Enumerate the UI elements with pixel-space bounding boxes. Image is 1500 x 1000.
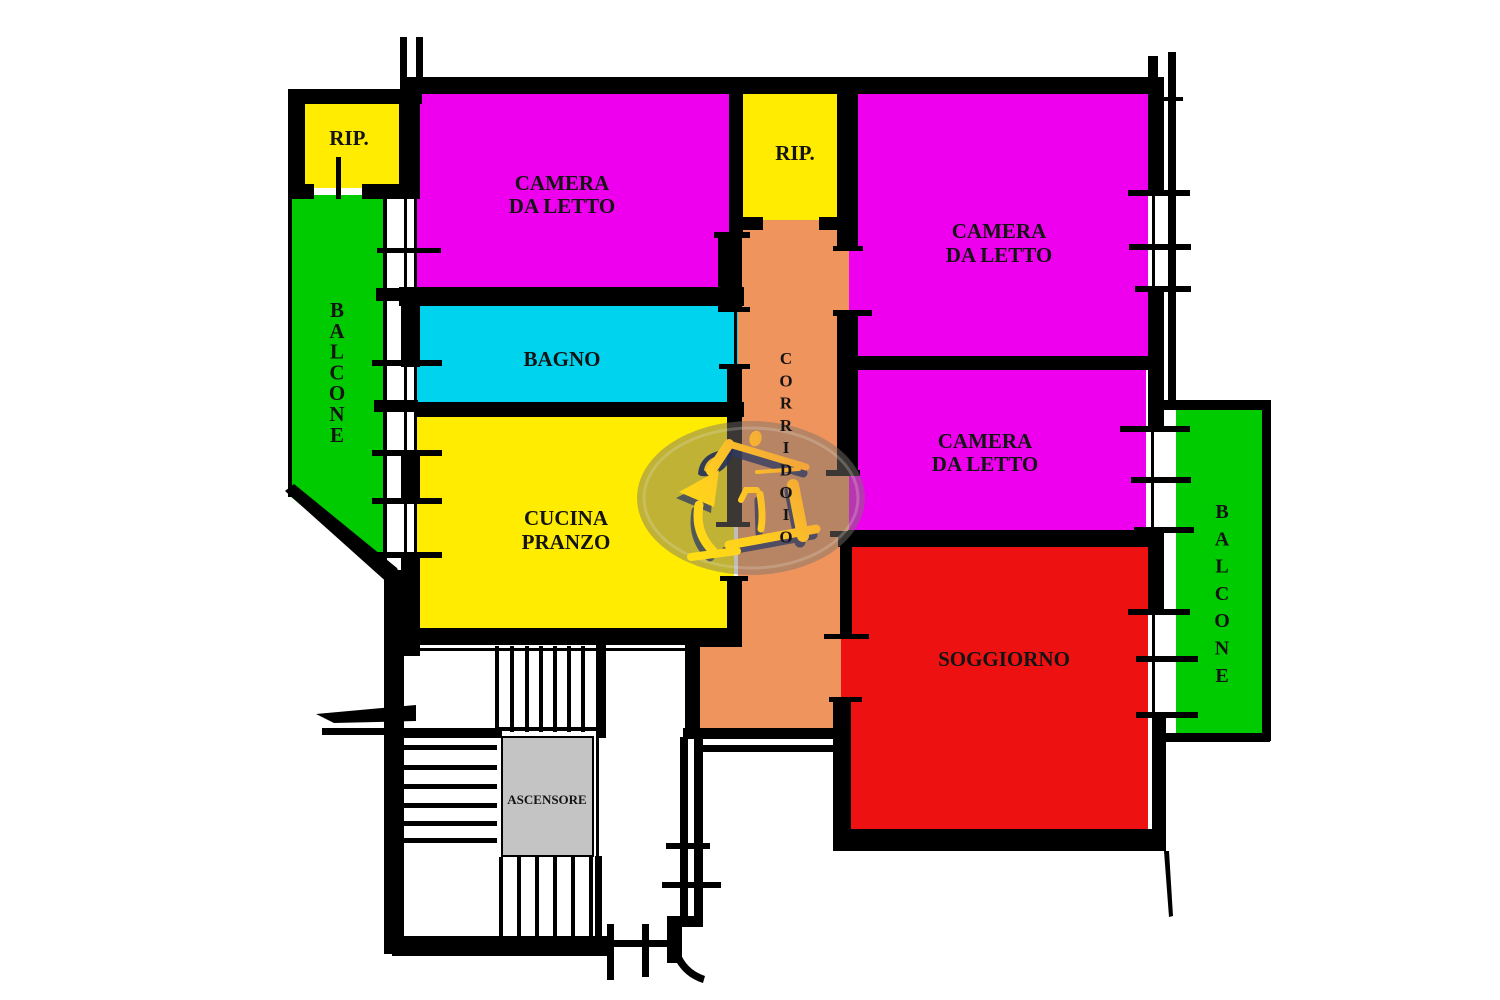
svg-text:BALCONE: BALCONE [1214,501,1230,687]
svg-text:PRANZO: PRANZO [522,530,611,554]
svg-text:SOGGIORNO: SOGGIORNO [938,647,1070,671]
svg-text:BALCONE: BALCONE [329,298,346,447]
svg-text:ASCENSORE: ASCENSORE [507,792,586,807]
svg-text:CAMERA: CAMERA [938,429,1033,453]
svg-text:CAMERA: CAMERA [515,171,610,195]
svg-text:DA LETTO: DA LETTO [946,243,1052,267]
svg-text:DA LETTO: DA LETTO [509,194,615,218]
svg-text:CAMERA: CAMERA [952,219,1047,243]
svg-text:DA LETTO: DA LETTO [932,452,1038,476]
svg-text:CUCINA: CUCINA [524,506,609,530]
svg-text:RIP.: RIP. [329,126,369,150]
svg-text:BAGNO: BAGNO [523,347,600,371]
svg-text:RIP.: RIP. [775,141,815,165]
